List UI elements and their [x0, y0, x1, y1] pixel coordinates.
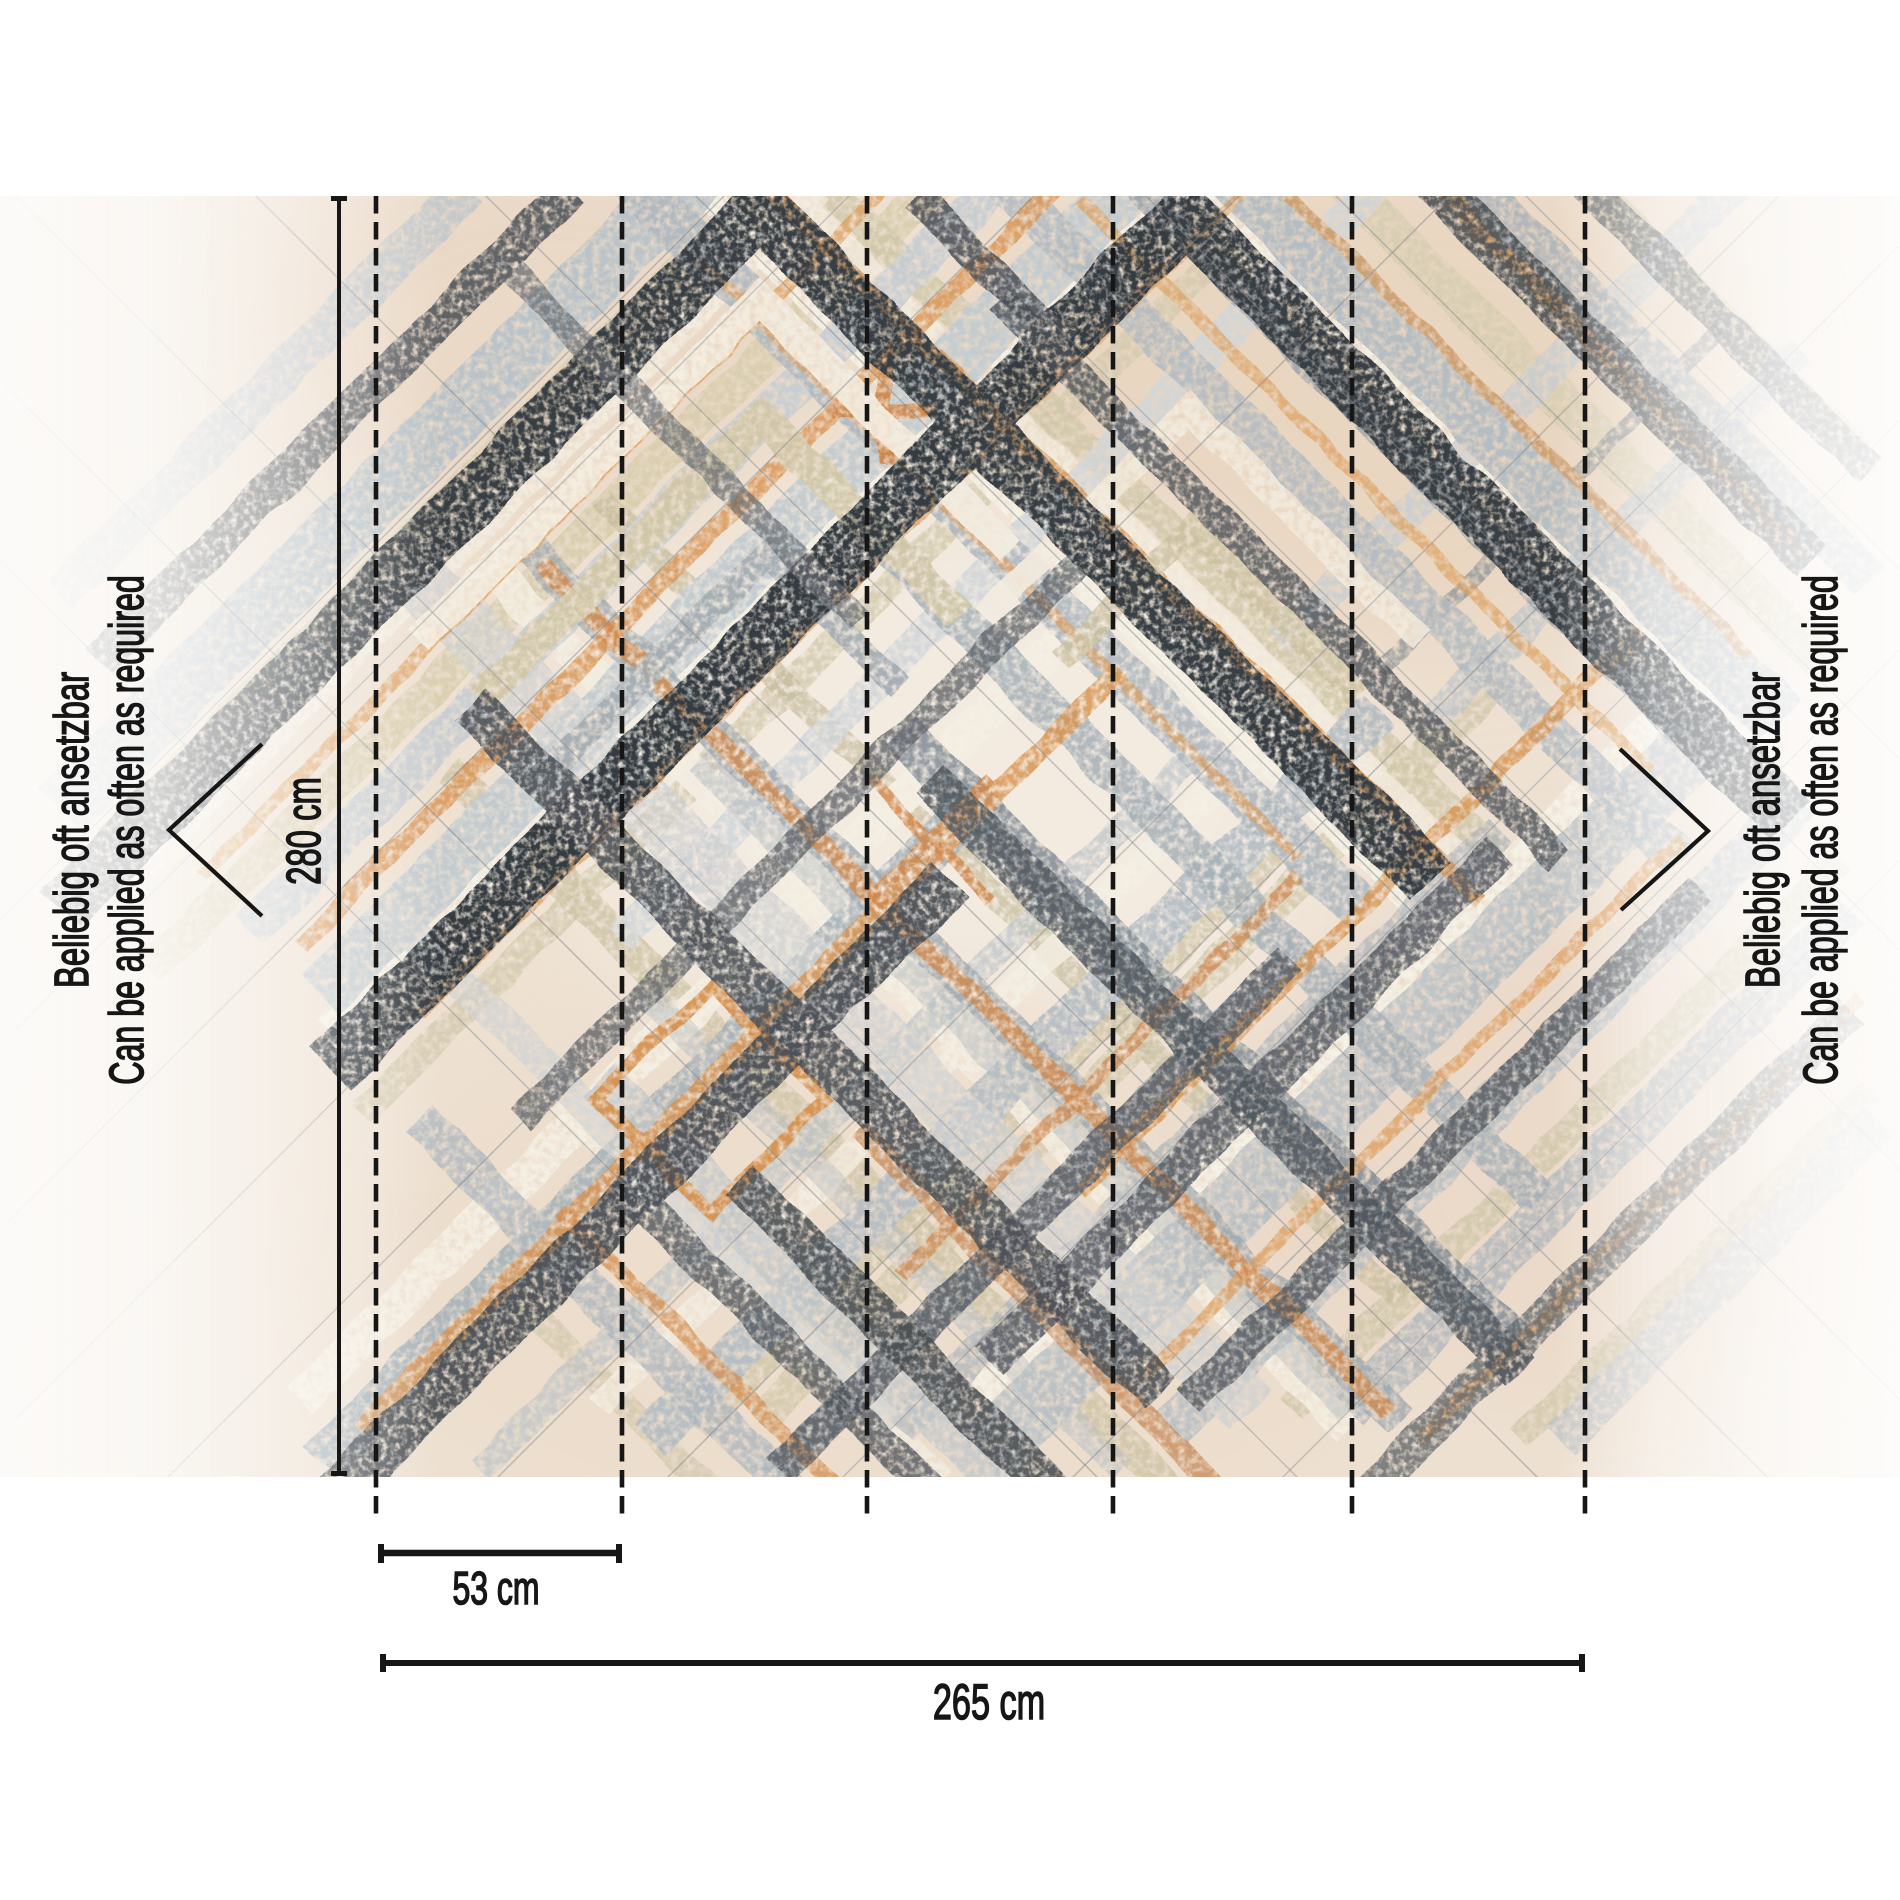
svg-text:Beliebig oft ansetzbar: Beliebig oft ansetzbar: [1736, 672, 1790, 988]
svg-text:265 cm: 265 cm: [933, 1675, 1045, 1731]
svg-text:Can be applied as often as req: Can be applied as often as required: [1794, 575, 1848, 1084]
svg-text:280 cm: 280 cm: [277, 777, 331, 885]
svg-text:Can be applied as often as req: Can be applied as often as required: [100, 575, 154, 1084]
svg-text:Beliebig oft ansetzbar: Beliebig oft ansetzbar: [45, 672, 99, 988]
svg-text:53 cm: 53 cm: [452, 1563, 539, 1614]
